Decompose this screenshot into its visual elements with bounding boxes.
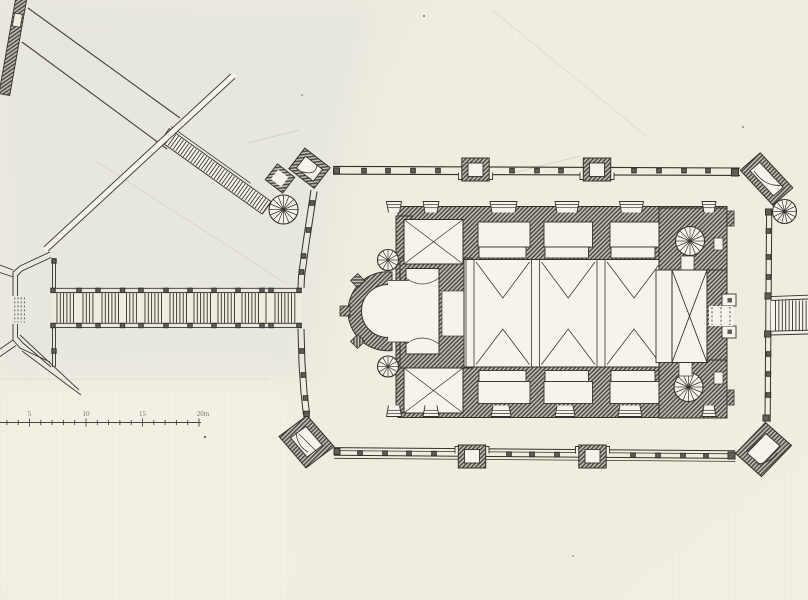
svg-text:5: 5 <box>28 410 32 418</box>
svg-text:10: 10 <box>83 410 91 418</box>
svg-text:15: 15 <box>139 410 147 418</box>
svg-text:20m: 20m <box>197 410 210 418</box>
